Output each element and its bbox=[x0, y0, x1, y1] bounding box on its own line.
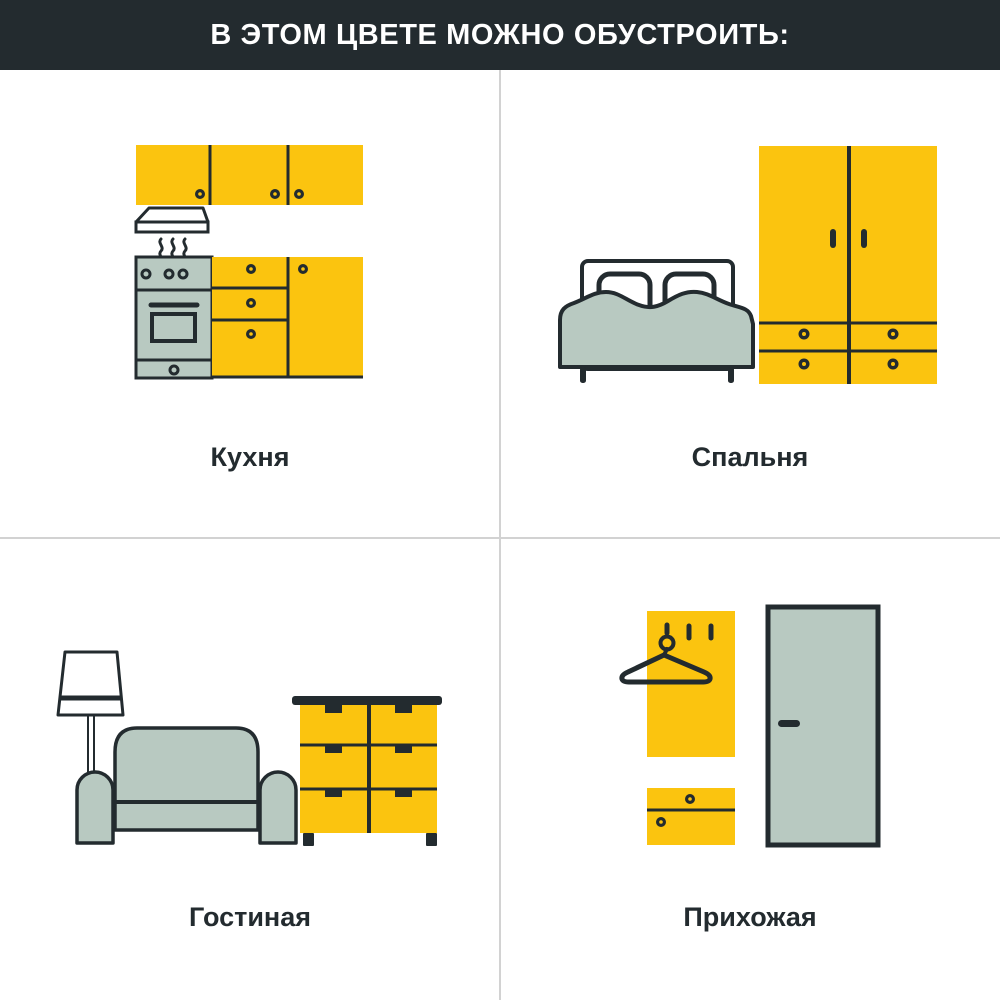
infographic: В ЭТОМ ЦВЕТЕ МОЖНО ОБУСТРОИТЬ: bbox=[0, 0, 1000, 1000]
hallway-door-icon bbox=[768, 607, 878, 845]
living-room-sofa-icon bbox=[77, 728, 296, 843]
page-title: В ЭТОМ ЦВЕТЕ МОЖНО ОБУСТРОИТЬ: bbox=[210, 19, 789, 52]
room-label-bedroom: Спальня bbox=[500, 441, 1000, 473]
kitchen-lower-cabinets bbox=[212, 257, 363, 377]
kitchen-stove-icon bbox=[136, 257, 212, 378]
bedroom-bed-icon bbox=[560, 261, 753, 383]
hallway-coat-rack-icon bbox=[622, 611, 735, 757]
bedroom-wardrobe-icon bbox=[759, 146, 937, 384]
hallway-bench-icon bbox=[647, 788, 735, 845]
kitchen-upper-cabinets bbox=[136, 145, 363, 205]
kitchen-hood-icon bbox=[136, 208, 208, 263]
room-label-living-room: Гостиная bbox=[0, 901, 500, 933]
header-bar: В ЭТОМ ЦВЕТЕ МОЖНО ОБУСТРОИТЬ: bbox=[0, 0, 1000, 70]
room-label-kitchen: Кухня bbox=[0, 441, 500, 473]
room-label-hallway: Прихожая bbox=[500, 901, 1000, 933]
living-room-dresser-icon bbox=[292, 696, 442, 846]
